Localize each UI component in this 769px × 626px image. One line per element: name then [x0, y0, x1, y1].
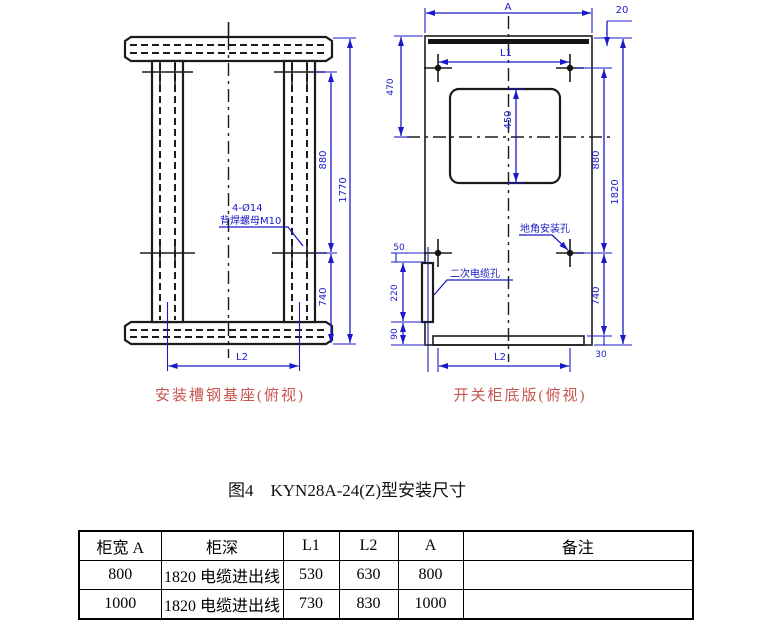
col-header-A: A: [398, 531, 463, 561]
dim-label-470: 470: [386, 78, 396, 95]
cell-remarks-1000: [463, 590, 693, 620]
table-row: 800 1820 电缆进出线 530 630 800: [79, 561, 693, 590]
col-header-cabinet-width: 柜宽 A: [79, 531, 161, 561]
right-channel: [284, 61, 315, 322]
left-channel: [152, 61, 183, 322]
dim-label-220: 220: [390, 284, 400, 301]
dim-label-L2-right: L2: [494, 352, 506, 363]
figure-4-drawings: 4-Ø14 背焊螺母M10 880 1770 740 L2 安装槽钢基座(俯视): [0, 0, 769, 470]
cell-depth-1000: 1820 电缆进出线: [161, 590, 283, 620]
col-header-remarks: 备注: [463, 531, 693, 561]
bottom-plate-caption: 开关柜底版(俯视): [454, 387, 587, 404]
cell-L2-1000: 830: [339, 590, 398, 620]
cell-width-800: 800: [79, 561, 161, 590]
table-row: 1000 1820 电缆进出线 730 830 1000: [79, 590, 693, 620]
manual-page: 4-Ø14 背焊螺母M10 880 1770 740 L2 安装槽钢基座(俯视): [0, 0, 769, 626]
cell-A-1000: 1000: [398, 590, 463, 620]
hole-spec-note-line1: 4-Ø14: [232, 202, 263, 214]
base-frame-drawing: 4-Ø14 背焊螺母M10 880 1770 740 L2 安装槽钢基座(俯视): [125, 22, 356, 404]
bottom-plate-drawing: A 20 L1 470 450 880 1820 740 30 50 220 9…: [386, 2, 632, 404]
dim-label-1820: 1820: [610, 179, 621, 204]
cell-L2-800: 630: [339, 561, 398, 590]
dim-label-740: 740: [318, 287, 329, 306]
col-header-cabinet-depth: 柜深: [161, 531, 283, 561]
dim-label-1770: 1770: [338, 177, 349, 202]
base-frame-caption: 安装槽钢基座(俯视): [155, 387, 305, 404]
dimension-table: 柜宽 A 柜深 L1 L2 A 备注 800 1820 电缆进出线 530 63…: [78, 530, 694, 620]
col-header-L2: L2: [339, 531, 398, 561]
dim-label-A: A: [505, 2, 512, 13]
cell-L1-800: 530: [283, 561, 339, 590]
figure-caption: 图4 KYN28A-24(Z)型安装尺寸: [228, 476, 466, 501]
dim-label-30: 30: [595, 350, 607, 360]
hole-spec-note-line2: 背焊螺母M10: [220, 214, 281, 227]
dim-label-740-right: 740: [591, 286, 602, 305]
anchor-hole-label: 地角安装孔: [520, 222, 570, 235]
cell-remarks-800: [463, 561, 693, 590]
cell-depth-800: 1820 电缆进出线: [161, 561, 283, 590]
secondary-cable-hole-label: 二次电缆孔: [450, 267, 500, 280]
dim-label-880-right: 880: [591, 150, 602, 169]
cell-L1-1000: 730: [283, 590, 339, 620]
dim-label-90: 90: [390, 328, 400, 340]
cell-A-800: 800: [398, 561, 463, 590]
dim-label-50: 50: [393, 243, 405, 253]
table-header-row: 柜宽 A 柜深 L1 L2 A 备注: [79, 531, 693, 561]
dim-label-L1: L1: [500, 48, 512, 59]
dim-label-450: 450: [503, 110, 514, 129]
cell-width-1000: 1000: [79, 590, 161, 620]
dim-label-880: 880: [318, 150, 329, 169]
dim-label-L2: L2: [236, 352, 248, 363]
col-header-L1: L1: [283, 531, 339, 561]
cable-opening: [450, 89, 560, 183]
dim-label-20: 20: [616, 5, 629, 16]
